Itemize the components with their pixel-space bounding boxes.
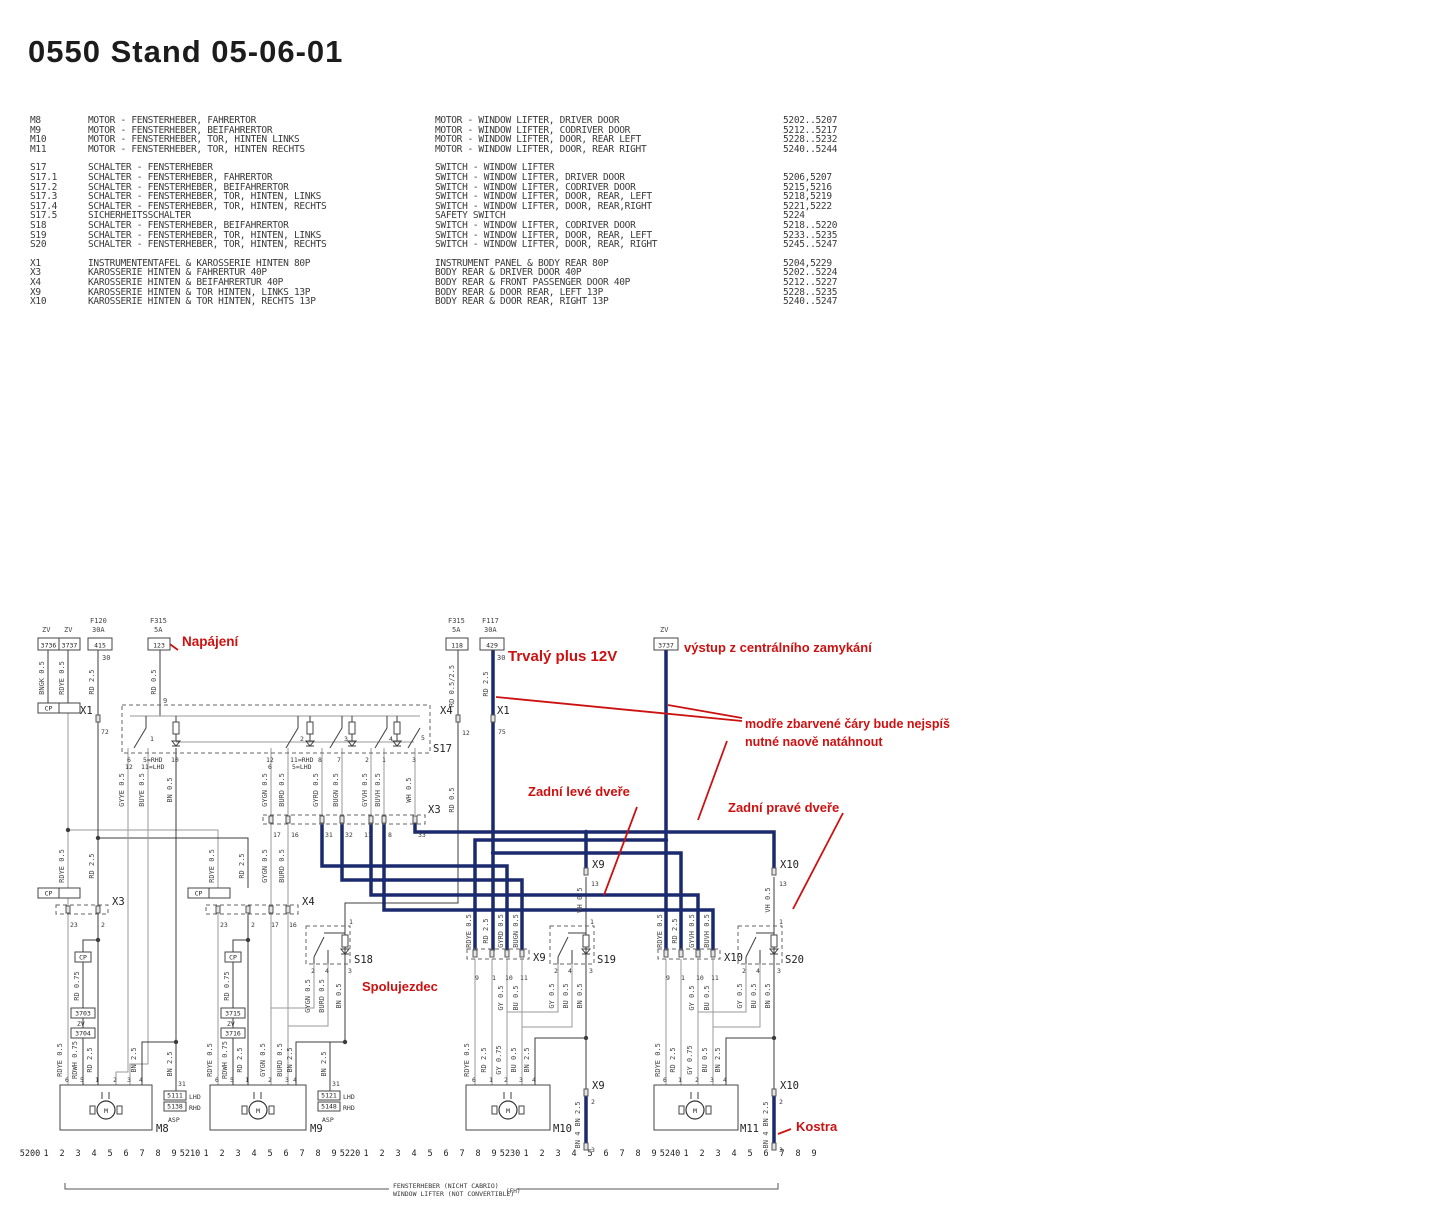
motor-letter: M: [256, 1107, 260, 1115]
scale-number: 6: [283, 1149, 288, 1159]
component-label-M10: M10: [553, 1123, 572, 1135]
component-box-blank: [209, 888, 230, 898]
motor-terminal: [242, 1106, 247, 1114]
box-label: 3703: [75, 1010, 91, 1018]
diagram-label: 3: [519, 1076, 523, 1084]
box-label: 5121: [321, 1092, 337, 1100]
component-label-S18: S18: [354, 954, 373, 966]
diagram-label: F120: [90, 617, 107, 625]
diagram-label: 4: [723, 1076, 727, 1084]
diagram-label: 31: [325, 831, 333, 839]
diagram-label: ZV: [64, 626, 73, 634]
footer-caption: WINDOW LIFTER (NOT CONVERTIBLE): [393, 1190, 514, 1198]
diagram-label: ASP: [168, 1116, 180, 1124]
diagram-label: ZV: [77, 1020, 85, 1028]
diagram-label: 5A: [452, 626, 461, 634]
resistor-box: [173, 722, 179, 734]
wire: [233, 940, 248, 952]
wire: [408, 728, 420, 748]
component-label-X3: X3: [112, 896, 125, 908]
diagram-label: ZV: [660, 626, 669, 634]
connector-pin: [505, 950, 509, 957]
diagram-label: BU 0.5: [562, 983, 570, 1008]
connector-pin: [696, 950, 700, 957]
red-leader-line: [496, 697, 742, 721]
junction-dot: [584, 830, 588, 834]
diagram-label: GY 0.5: [497, 985, 505, 1010]
diagram-label: ZV: [227, 1020, 235, 1028]
scale-number: 2: [699, 1149, 704, 1159]
scale-number: 7: [779, 1149, 784, 1159]
diagram-label: BN 2.5: [523, 1047, 531, 1072]
scale-number: 4: [731, 1149, 736, 1159]
motor-terminal: [117, 1106, 122, 1114]
diagram-label: 10: [696, 974, 704, 982]
annotation-trvaly-plus: Trvalý plus 12V: [508, 648, 617, 665]
diagram-label: BN 2.5: [714, 1047, 722, 1072]
diagram-label: GYGN 0.5: [304, 979, 312, 1013]
diagram-label: 12: [462, 729, 470, 737]
component-label-X9: X9: [592, 859, 605, 871]
diagram-label: 4: [756, 967, 760, 975]
diagram-label: RD 2.5: [236, 1047, 244, 1072]
diagram-label: GY 0.5: [736, 983, 744, 1008]
diagram-label: 4: [532, 1076, 536, 1084]
resistor-box: [394, 722, 400, 734]
diagram-label: 2: [251, 921, 255, 929]
resistor-box: [583, 935, 589, 947]
connector-pin: [413, 816, 417, 823]
connector-pin: [473, 950, 477, 957]
diagram-label: 1: [349, 918, 353, 926]
component-box-blank: [59, 888, 80, 898]
diagram-label: 3: [344, 735, 348, 743]
component-label-X9: X9: [592, 1080, 605, 1092]
diagram-label: 2: [779, 1098, 783, 1106]
diagram-label: 6: [215, 1076, 219, 1084]
diagram-label: RD 2.5: [482, 918, 490, 943]
component-label-M9: M9: [310, 1123, 323, 1135]
diagram-label: 23: [70, 921, 78, 929]
diagram-label: RHD: [189, 1104, 201, 1112]
diagram-label: 4: [139, 1076, 143, 1084]
scale-number: 2: [379, 1149, 384, 1159]
component-box-blank: [59, 703, 80, 713]
junction-dot: [584, 1036, 588, 1040]
motor-letter: M: [104, 1107, 108, 1115]
diagram-label: 3: [777, 967, 781, 975]
diagram-label: 6: [268, 763, 272, 771]
connector-pin: [66, 906, 70, 913]
diagram-label: 30A: [92, 626, 105, 634]
diagram-label: 9: [163, 697, 167, 705]
component-label-X10: X10: [780, 1080, 799, 1092]
resistor-box: [349, 722, 355, 734]
motor-letter: M: [506, 1107, 510, 1115]
diagram-label: GY 0.75: [686, 1045, 694, 1075]
connector-pin: [320, 816, 324, 823]
scale-number: 3: [395, 1149, 400, 1159]
diagram-label: RDYE 0.5: [206, 1043, 214, 1077]
junction-dot: [343, 1040, 347, 1044]
scale-number: 4: [251, 1149, 256, 1159]
connector-pin: [246, 906, 250, 913]
annotation-vystup-zamykani: výstup z centrálního zamykání: [684, 640, 872, 655]
scale-number: 3: [715, 1149, 720, 1159]
scale-number: 8: [795, 1149, 800, 1159]
diagram-label: 17: [273, 831, 281, 839]
diagram-label: 7: [337, 756, 341, 764]
red-leader-line: [778, 1129, 791, 1134]
diagram-label: GYRD 0.5: [497, 914, 505, 948]
diagram-label: 12: [125, 763, 133, 771]
diagram-label: 11=LHD: [141, 763, 165, 771]
diagram-label: 11: [520, 974, 528, 982]
diagram-label: RHD: [343, 1104, 355, 1112]
scale-number: 8: [155, 1149, 160, 1159]
wire: [746, 937, 756, 957]
diagram-label: RDYE 0.5: [56, 1043, 64, 1077]
diagram-label: GYVH 0.5: [688, 914, 696, 948]
diagram-label: 10: [505, 974, 513, 982]
diagram-label: 75: [498, 728, 506, 736]
component-label-X9: X9: [533, 952, 546, 964]
diagram-label: 1: [492, 974, 496, 982]
diagram-label: BUYE 0.5: [138, 773, 146, 807]
wire: [134, 716, 146, 748]
diagram-label: 2: [300, 735, 304, 743]
connector-pin: [490, 950, 494, 957]
diagram-label: VH 0.5: [764, 887, 772, 912]
diagram-label: BU 0.5: [512, 985, 520, 1010]
component-label-X4: X4: [302, 896, 315, 908]
scale-number: 5240: [660, 1149, 680, 1159]
scale-number: 8: [635, 1149, 640, 1159]
annotation-modre-cary-2: nutné naově natáhnout: [745, 735, 883, 749]
connector-pin: [491, 715, 495, 722]
diagram-label: RDYE 0.5: [58, 661, 66, 695]
connector-pin: [382, 816, 386, 823]
motor-letter: M: [693, 1107, 697, 1115]
diagram-label: GYRD 0.5: [312, 773, 320, 807]
junction-dot: [66, 828, 70, 832]
diagram-label: BUGN 0.5: [332, 773, 340, 807]
box-label: 123: [153, 642, 165, 650]
diagram-label: LHD: [189, 1093, 201, 1101]
diagram-label: BN 0.5: [576, 983, 584, 1008]
annotation-spolujezdec: Spolujezdec: [362, 979, 438, 994]
connector-pin: [520, 950, 524, 957]
diagram-label: BUVH 0.5: [703, 914, 711, 948]
scale-number: 4: [571, 1149, 576, 1159]
wire: [517, 1183, 778, 1189]
diagram-label: GYGN 0.5: [259, 1043, 267, 1077]
junction-dot: [96, 938, 100, 942]
diagram-label: 23: [220, 921, 228, 929]
diagram-label: 2: [504, 1076, 508, 1084]
diagram-label: RD 2.5: [480, 1047, 488, 1072]
diagram-label: 72: [101, 728, 109, 736]
component-label-X10: X10: [780, 859, 799, 871]
diagram-label: 2: [113, 1076, 117, 1084]
scale-number: 1: [523, 1149, 528, 1159]
connector-pin: [216, 906, 220, 913]
diagram-label: 3: [412, 756, 416, 764]
scale-number: 1: [683, 1149, 688, 1159]
scale-number: 3: [555, 1149, 560, 1159]
diagram-label: ASP: [322, 1116, 334, 1124]
junction-dot: [491, 851, 495, 855]
scale-number: 5230: [500, 1149, 520, 1159]
red-leader-line: [793, 813, 843, 909]
scale-number: 1: [363, 1149, 368, 1159]
diagram-label: 30A: [484, 626, 497, 634]
diagram-label: BN 0.5: [166, 777, 174, 802]
diagram-label: 1: [489, 1076, 493, 1084]
diagram-label: RDYE 0.5: [465, 914, 473, 948]
diagram-label: RD 0.5: [150, 669, 158, 694]
diagram-label: BN 4: [574, 1132, 582, 1149]
connector-pin: [269, 816, 273, 823]
diagram-label: 5A: [154, 626, 163, 634]
diagram-label: 17: [271, 921, 279, 929]
diagram-label: F315: [150, 617, 167, 625]
diagram-label: BUGN 0.5: [512, 914, 520, 948]
scale-number: 1: [43, 1149, 48, 1159]
scale-number: 7: [139, 1149, 144, 1159]
diagram-label: 6: [663, 1076, 667, 1084]
diagram-label: GYVH 0.5: [361, 773, 369, 807]
component-label-X10: X10: [724, 952, 743, 964]
connector-pin: [96, 715, 100, 722]
diagram-label: RDYE 0.5: [656, 914, 664, 948]
diagram-label: 2: [365, 756, 369, 764]
diagram-label: 2: [268, 1076, 272, 1084]
diagram-label: 16: [291, 831, 299, 839]
junction-dot: [246, 938, 250, 942]
box-label: 5111: [167, 1092, 183, 1100]
wiring-diagram-page: 0550 Stand 05-06-01 M8MOTOR - FENSTERHEB…: [0, 0, 1440, 1216]
box-label: CP: [229, 954, 237, 962]
component-label-S20: S20: [785, 954, 804, 966]
diagram-label: 1: [95, 1076, 99, 1084]
wire: [535, 1038, 586, 1085]
box-label: 429: [486, 642, 498, 650]
resistor-box: [771, 935, 777, 947]
junction-dot: [664, 838, 668, 842]
wire: [330, 716, 342, 748]
diagram-label: RD 0.5/2.5: [448, 665, 456, 707]
diagram-label: F315: [448, 617, 465, 625]
connector-pin: [584, 1089, 588, 1096]
diagram-label: BN 2.5: [286, 1047, 294, 1072]
diagram-label: RD 0.5: [448, 787, 456, 812]
diagram-label: 4: [389, 735, 393, 743]
diagram-label: GYGN 0.5: [261, 849, 269, 883]
scale-number: 9: [651, 1149, 656, 1159]
diagram-label: 11: [711, 974, 719, 982]
diagram-label: RDWH 0.75: [71, 1041, 79, 1079]
diagram-label: 1: [681, 974, 685, 982]
diagram-label: RD 2.5: [669, 1047, 677, 1072]
annotation-kostra: Kostra: [796, 1119, 838, 1134]
diagram-label: RD 2.5: [238, 853, 246, 878]
connector-pin: [286, 816, 290, 823]
connector-pin: [772, 868, 776, 875]
scale-number: 9: [331, 1149, 336, 1159]
scale-number: 7: [299, 1149, 304, 1159]
diagram-label: RD 2.5: [88, 669, 96, 694]
scale-number: 5: [747, 1149, 752, 1159]
scale-number: 5: [267, 1149, 272, 1159]
diagram-label: F117: [482, 617, 499, 625]
diagram-label: 9: [666, 974, 670, 982]
scale-number: 6: [443, 1149, 448, 1159]
diagram-label: 1: [678, 1076, 682, 1084]
component-label-X1: X1: [497, 705, 510, 717]
wire: [98, 838, 248, 888]
scale-number: 8: [315, 1149, 320, 1159]
diagram-label: 30: [102, 654, 110, 662]
diagram-label: BURD 0.5: [278, 849, 286, 883]
diagram-label: 9: [475, 974, 479, 982]
wire: [83, 940, 98, 952]
junction-dot: [772, 1036, 776, 1040]
junction-dot: [174, 1040, 178, 1044]
footer-caption: (FH): [506, 1188, 520, 1195]
scale-number: 5220: [340, 1149, 360, 1159]
connector-pin: [772, 1143, 776, 1150]
diagram-label: 2: [742, 967, 746, 975]
box-label: 3704: [75, 1030, 91, 1038]
wire: [65, 1183, 389, 1189]
box-label: 5148: [321, 1103, 337, 1111]
diagram-label: BUVH 0.5: [374, 773, 382, 807]
motor-terminal: [492, 1106, 497, 1114]
diagram-label: BNGK 0.5: [38, 661, 46, 695]
diagram-label: 4: [293, 1076, 297, 1084]
connector-pin: [96, 906, 100, 913]
diagram-label: 1: [382, 756, 386, 764]
connector-pin: [711, 950, 715, 957]
diagram-label: RD 0.75: [223, 971, 231, 1001]
wire: [314, 937, 324, 957]
diagram-label: 2: [554, 967, 558, 975]
box-label: 5138: [167, 1103, 183, 1111]
connector-pin: [664, 950, 668, 957]
box-label: 3737: [62, 642, 78, 650]
box-label: 3716: [225, 1030, 241, 1038]
diagram-label: 2: [311, 967, 315, 975]
component-label-S19: S19: [597, 954, 616, 966]
motor-terminal: [519, 1106, 524, 1114]
diagram-label: 4: [325, 967, 329, 975]
diagram-label: 16: [289, 921, 297, 929]
scale-number: 2: [539, 1149, 544, 1159]
wire: [558, 937, 568, 957]
component-label-X1: X1: [80, 705, 93, 717]
scale-number: 4: [91, 1149, 96, 1159]
scale-number: 5: [427, 1149, 432, 1159]
connector-pin: [286, 906, 290, 913]
connector-pin: [340, 816, 344, 823]
connector-pin: [772, 1089, 776, 1096]
diagram-label: BU 0.5: [703, 985, 711, 1010]
connector-pin: [369, 816, 373, 823]
annotation-zadni-prave: Zadní pravé dveře: [728, 800, 839, 815]
component-label-S17: S17: [433, 743, 452, 755]
scale-number: 5200: [20, 1149, 40, 1159]
diagram-label: WH 0.5: [576, 887, 584, 912]
diagram-label: 10: [171, 756, 179, 764]
scale-number: 3: [75, 1149, 80, 1159]
annotation-modre-cary-1: modře zbarvené čáry bude nejspíš: [745, 717, 950, 731]
scale-number: 5: [107, 1149, 112, 1159]
wire: [286, 716, 298, 748]
scale-number: 5: [587, 1149, 592, 1159]
motor-terminal: [679, 1106, 684, 1114]
diagram-label: BN 2.5: [130, 1047, 138, 1072]
connector-pin: [584, 868, 588, 875]
diagram-label: RDWH 0.75: [221, 1041, 229, 1079]
scale-number: 3: [235, 1149, 240, 1159]
diagram-label: BN 2.5: [762, 1101, 770, 1126]
junction-dot: [96, 836, 100, 840]
diagram-label: 3: [348, 967, 352, 975]
diagram-label: 2: [695, 1076, 699, 1084]
diagram-label: BURD 0.5: [318, 979, 326, 1013]
scale-number: 6: [763, 1149, 768, 1159]
diagram-label: 5: [421, 734, 425, 742]
red-leader-line: [604, 807, 637, 895]
scale-number: 9: [811, 1149, 816, 1159]
diagram-label: RD 2.5: [482, 671, 490, 696]
diagram-label: 5: [80, 1076, 84, 1084]
scale-number: 2: [59, 1149, 64, 1159]
diagram-label: 4: [568, 967, 572, 975]
wire: [726, 1038, 774, 1085]
box-label: CP: [45, 890, 53, 898]
diagram-label: 30: [497, 654, 505, 662]
diagram-label: 6: [472, 1076, 476, 1084]
diagram-label: RD 2.5: [86, 1047, 94, 1072]
box-label: 3737: [658, 642, 674, 650]
box-label: CP: [195, 890, 203, 898]
annotation-napajeni: Napájení: [182, 634, 240, 649]
connector-pin: [269, 906, 273, 913]
component-label-M11: M11: [740, 1123, 759, 1135]
diagram-label: 1: [779, 918, 783, 926]
diagram-label: 6: [65, 1076, 69, 1084]
scale-number: 9: [491, 1149, 496, 1159]
box-label: 118: [451, 642, 463, 650]
diagram-label: 33: [418, 831, 426, 839]
diagram-label: 11: [364, 831, 372, 839]
wiring-diagram: 373637374151231184293737CPCPCPCPCP370337…: [0, 0, 1440, 1216]
diagram-label: 13: [779, 880, 787, 888]
diagram-label: 5: [230, 1076, 234, 1084]
diagram-label: GYYE 0.5: [118, 773, 126, 807]
wire: [375, 716, 387, 748]
diagram-label: 31: [332, 1080, 340, 1088]
diagram-label: BU 0.5: [750, 983, 758, 1008]
scale-number: 7: [619, 1149, 624, 1159]
box-label: 3736: [41, 642, 57, 650]
diagram-label: 2: [101, 921, 105, 929]
annotation-zadni-leve: Zadní levé dveře: [528, 784, 630, 799]
scale-number: 1: [203, 1149, 208, 1159]
diagram-label: 31: [178, 1080, 186, 1088]
